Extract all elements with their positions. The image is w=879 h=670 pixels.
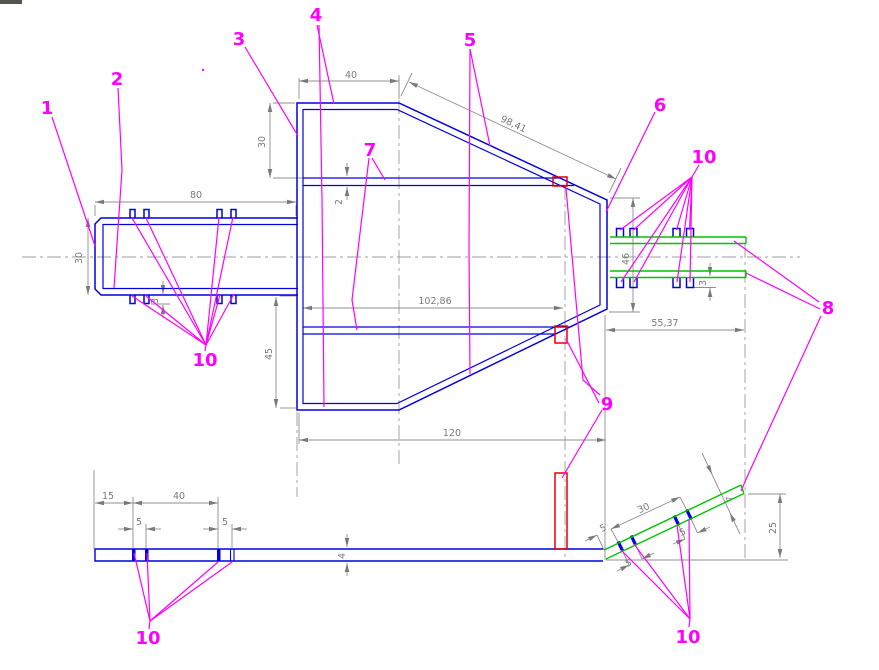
leader-3: [245, 47, 298, 136]
dim-rail-length: 102,86: [303, 296, 563, 308]
dim-text-5-left: 5: [136, 517, 142, 528]
part-label-6: 6: [654, 95, 667, 116]
dim-text-40-top: 40: [345, 70, 357, 81]
technical-drawing: 80 30 3 40 30 2 98,41 102: [0, 0, 879, 670]
dim-text-5-right: 5: [222, 517, 228, 528]
part-label-10-bottom-right: 10: [675, 627, 700, 648]
dim-diagonal-length: 98,41: [409, 82, 616, 179]
leader-8a: [734, 241, 819, 302]
leader-8c: [741, 316, 821, 491]
part-label-3: 3: [233, 29, 246, 50]
dim-top-flange: 40: [299, 70, 399, 81]
dim-text-5-incline-a: 5: [598, 522, 608, 535]
dim-text-46: 46: [621, 253, 632, 265]
main-frame-side-view: [297, 103, 607, 410]
leader-5b: [469, 49, 470, 374]
dim-text-45: 45: [264, 348, 275, 360]
dim-text-25: 25: [768, 522, 779, 534]
extension-lines: [94, 73, 788, 565]
part-label-5: 5: [464, 30, 477, 51]
dim-text-2: 2: [334, 199, 345, 205]
plank-top-side-view: [610, 237, 746, 244]
leader-7a: [372, 158, 385, 180]
dim-slot-pitch-right: 5: [203, 517, 247, 529]
dim-extension-length: 55,37: [606, 318, 744, 330]
dim-text-55-37: 55,37: [651, 318, 678, 329]
dim-slot-pitch-left: 5: [118, 517, 161, 529]
plank-geometry: [604, 237, 746, 559]
strip-slot-3: [217, 549, 221, 561]
leader-9b: [566, 339, 599, 403]
clip-bottom-3: [673, 278, 680, 288]
dim-strip-span: 40: [133, 491, 218, 503]
leader-9a: [566, 188, 600, 395]
part-label-10-top-right: 10: [691, 147, 716, 168]
leader-4b: [319, 25, 324, 407]
dim-text-40-bottom: 40: [173, 491, 185, 502]
dim-incline-rise: 25: [768, 494, 780, 558]
plank-incline-bottom-view: [604, 485, 744, 559]
part-label-7: 7: [364, 140, 377, 161]
dim-incline-slot-pitch2: 5: [617, 553, 654, 571]
leader-2: [114, 88, 122, 288]
leader-5a: [470, 49, 490, 146]
dim-base-width: 120: [299, 428, 606, 440]
dim-text-102-86: 102,86: [418, 296, 451, 307]
dim-top-drop: 30: [257, 103, 270, 178]
part-label-2: 2: [111, 69, 124, 90]
part-label-1: 1: [41, 98, 54, 119]
dim-text-98-41: 98,41: [499, 114, 528, 136]
part-label-4: 4: [310, 5, 323, 26]
window-corner-artifact: [0, 0, 22, 4]
dim-tube-length: 80: [95, 190, 296, 202]
dim-text-5-incline-c: 5: [624, 557, 634, 570]
tube-tab-top-3: [217, 210, 222, 219]
dim-clip-height: 3: [698, 263, 710, 301]
dim-text-30-incline: 30: [636, 501, 652, 516]
leader-7b: [352, 158, 369, 330]
leader-6: [606, 112, 655, 212]
cad-drawing-canvas: 80 30 3 40 30 2 98,41 102: [0, 0, 879, 670]
leader-9c: [562, 410, 602, 478]
leader-8b: [746, 273, 820, 309]
part-label-10-left: 10: [192, 350, 217, 371]
dim-text-3-right: 3: [698, 280, 709, 286]
dim-strip-thickness: 4: [337, 534, 348, 576]
dim-text-4-bottom: 4: [337, 553, 348, 559]
dim-text-120: 120: [443, 428, 461, 439]
dim-text-80: 80: [190, 190, 202, 201]
dim-text-30-top: 30: [257, 136, 268, 148]
flat-strip-bottom-view: [95, 549, 603, 561]
centerlines: [22, 75, 800, 560]
dim-strip-offset: 15: [95, 491, 133, 503]
tube-tab-top-1: [130, 210, 135, 219]
left-tube-side-view: [95, 210, 298, 304]
dim-rail-thickness: 2: [334, 163, 347, 205]
leader-fan-10-left: [132, 217, 234, 351]
stray-mark: [202, 69, 204, 71]
leader-1: [52, 117, 95, 246]
part-label-9: 9: [601, 394, 614, 415]
dim-lower-drop: 45: [264, 297, 276, 408]
tube-tab-top-2: [144, 210, 149, 219]
dim-right-height: 46: [621, 198, 633, 312]
dim-incline-span: 30: [611, 497, 680, 529]
tube-tab-top-4: [231, 210, 236, 219]
dim-tube-height: 30: [74, 218, 88, 295]
dim-text-15: 15: [102, 491, 114, 502]
part-label-10-bottom-left: 10: [135, 628, 160, 649]
leader-fan-10-bottom-left: [134, 553, 232, 629]
dim-text-30-left: 30: [74, 252, 85, 264]
part-label-8: 8: [822, 298, 835, 319]
